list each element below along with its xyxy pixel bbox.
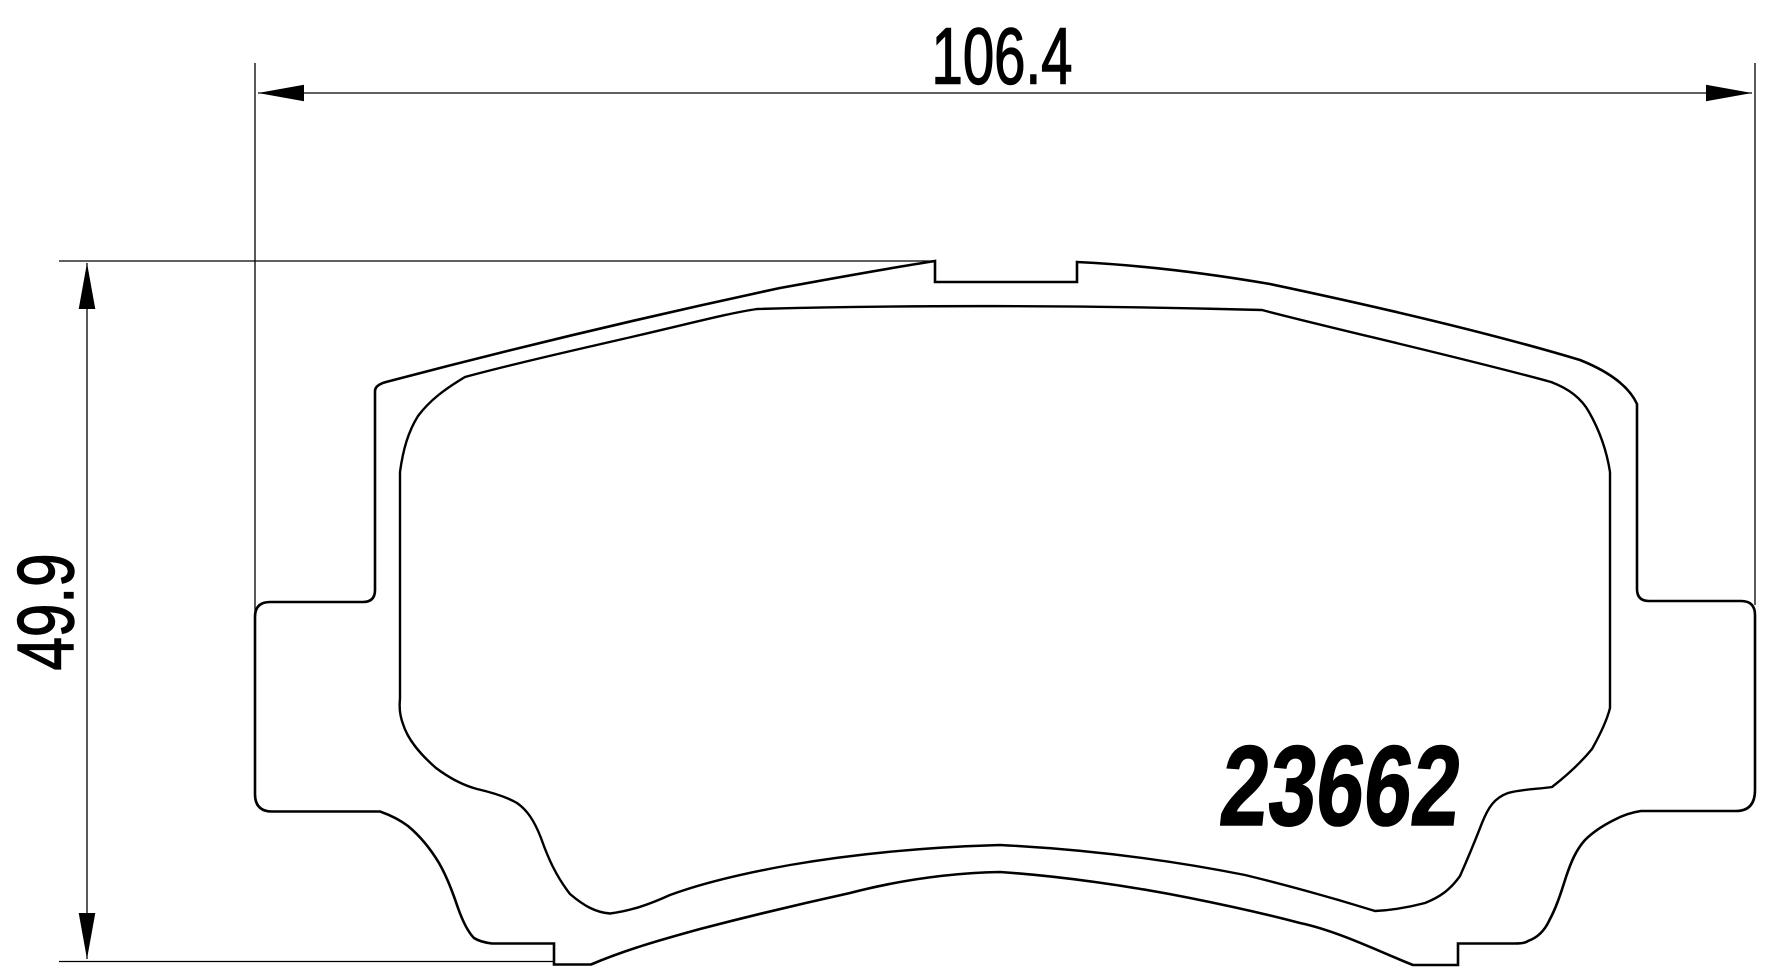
svg-text:23662: 23662 xyxy=(1215,723,1467,850)
svg-text:49.9: 49.9 xyxy=(1,554,90,671)
svg-text:106.4: 106.4 xyxy=(932,12,1073,101)
